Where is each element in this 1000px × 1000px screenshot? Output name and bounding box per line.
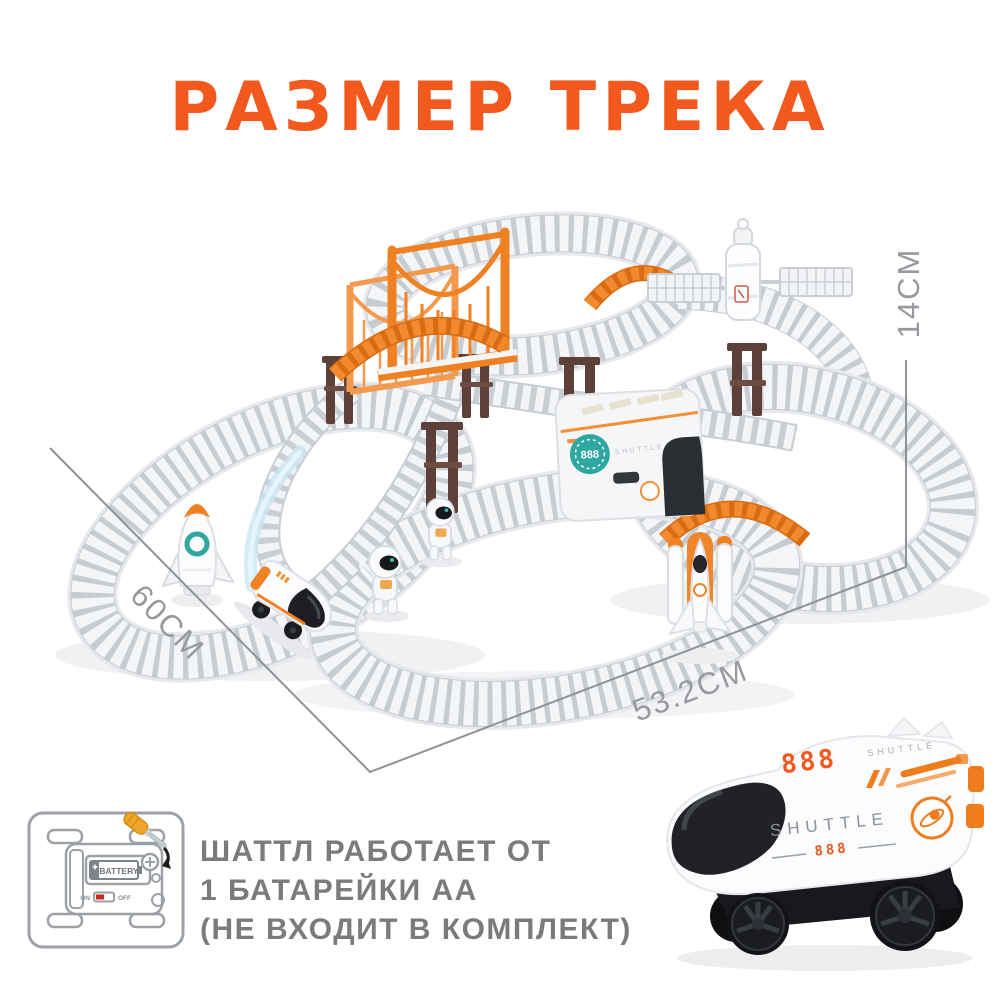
product-size-infographic: РАЗМЕР ТРЕКА <box>0 0 1000 1000</box>
track-loop-top <box>379 220 686 370</box>
astronaut-visor <box>380 556 399 571</box>
shuttle-cockpit <box>693 555 707 573</box>
battery-note-line-3: (НЕ ВХОДИТ В КОМПЛЕКТ) <box>200 910 720 949</box>
shuttle-product-photo: 888 SHUTTLE SHUTTLE 888 <box>650 712 1000 982</box>
station-tunnel: 888 SHUTTLE <box>555 388 705 521</box>
battery-cell: BATTERY <box>90 861 142 879</box>
page-title: РАЗМЕР ТРЕКА <box>0 68 1000 147</box>
switch-on-label: ON <box>80 895 90 902</box>
battery-compartment-icon: BATTERY ON OFF <box>26 810 186 950</box>
astronaut-visor <box>435 506 452 519</box>
battery-note: ШАТТЛ РАБОТАЕТ ОТ 1 БАТАРЕЙКИ АА (НЕ ВХО… <box>200 832 720 949</box>
switch-off-label: OFF <box>118 895 131 902</box>
battery-note-line-2: 1 БАТАРЕЙКИ АА <box>200 871 720 910</box>
solar-panel-right <box>780 268 852 296</box>
battery-label: BATTERY <box>99 866 139 876</box>
battery-note-line-1: ШАТТЛ РАБОТАЕТ ОТ <box>200 832 720 871</box>
track-scene: 888 SHUTTLE <box>0 200 1000 780</box>
front-wheel <box>727 893 789 955</box>
rocket-window <box>187 534 207 554</box>
dimension-height-label: 14CM <box>891 248 926 339</box>
station-badge-number: 888 <box>580 449 599 462</box>
rocket <box>163 504 233 607</box>
solar-panel-left <box>648 274 720 302</box>
rear-wheel <box>870 881 940 951</box>
